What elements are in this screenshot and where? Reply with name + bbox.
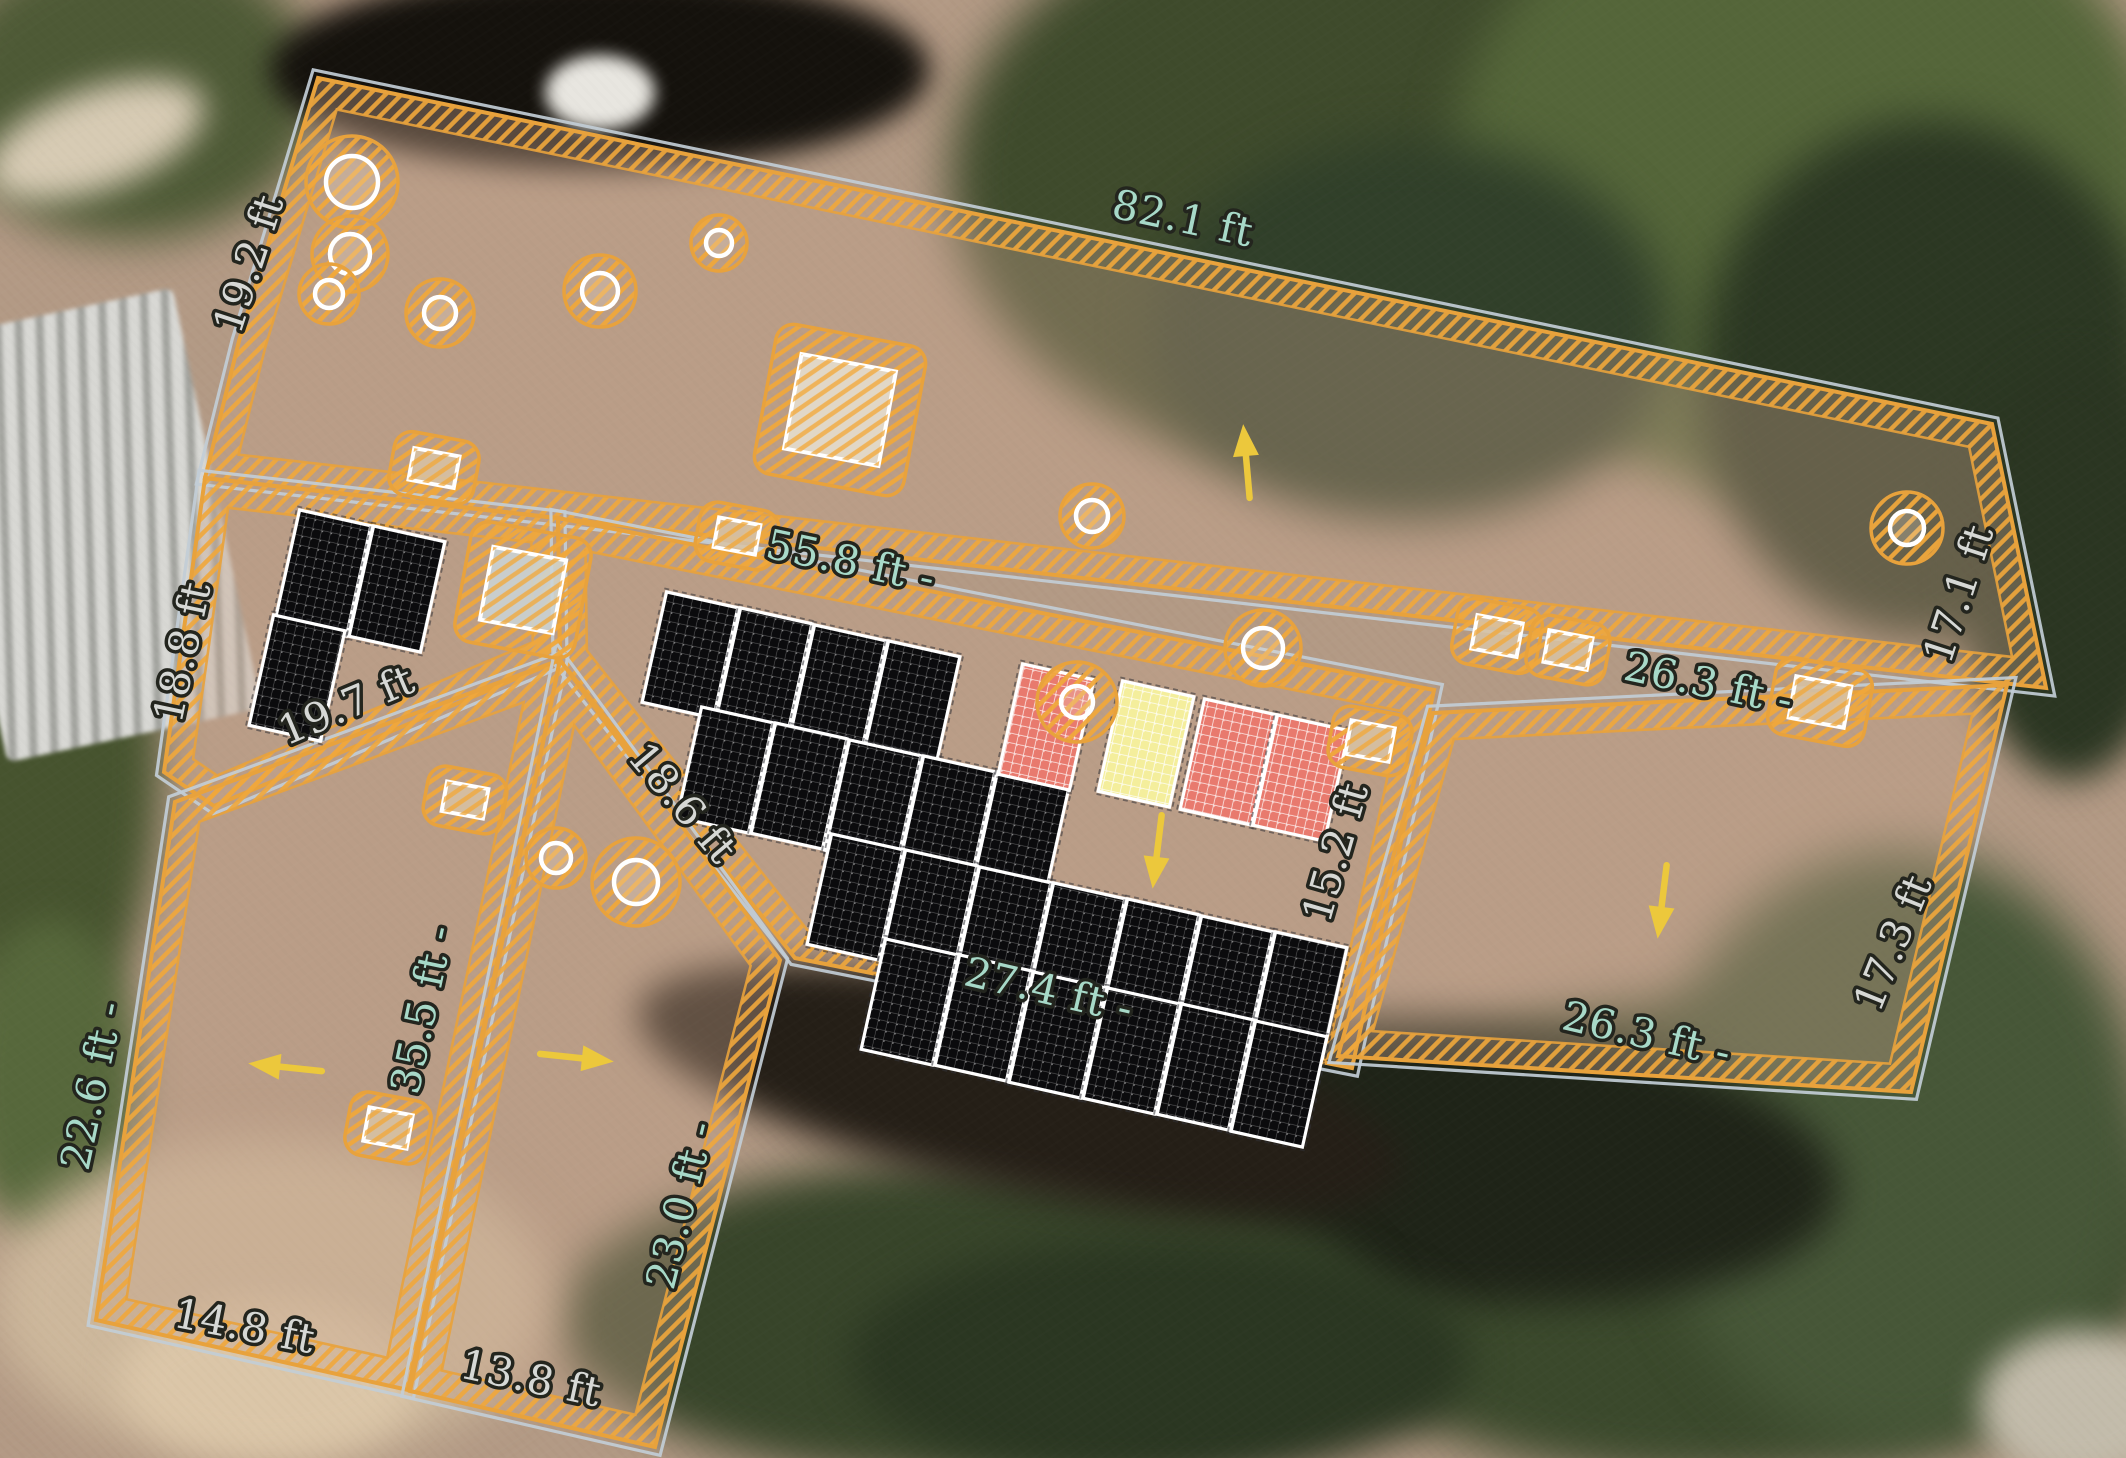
solar-design-canvas[interactable]: 82.1 ft19.2 ft55.8 ft -18.8 ft19.7 ft18.… [0, 0, 2126, 1458]
vent-obstruction[interactable] [406, 279, 474, 347]
vent-circle-icon [1890, 511, 1924, 545]
vent-obstruction[interactable] [1037, 662, 1117, 742]
skylight-obstruction[interactable] [1523, 612, 1613, 688]
vent-circle-icon [1076, 500, 1108, 532]
vent-obstruction[interactable] [592, 838, 680, 926]
skylight-obstruction[interactable] [1325, 703, 1415, 779]
vent-circle-icon [1243, 628, 1283, 668]
vent-obstruction[interactable] [1060, 484, 1124, 548]
vent-obstruction[interactable] [306, 136, 398, 228]
vent-circle-icon [706, 230, 732, 256]
vent-circle-icon [1061, 686, 1093, 718]
design-overlay: 82.1 ft19.2 ft55.8 ft -18.8 ft19.7 ft18.… [0, 0, 2126, 1458]
vent-obstruction[interactable] [1225, 610, 1301, 686]
vent-circle-icon [541, 843, 571, 873]
vent-obstruction[interactable] [299, 264, 359, 324]
vent-obstruction[interactable] [526, 828, 586, 888]
vent-obstruction[interactable] [564, 255, 636, 327]
skylight-obstruction[interactable] [452, 519, 594, 661]
vent-circle-icon [614, 860, 658, 904]
skylight-obstruction[interactable] [386, 429, 482, 508]
vent-circle-icon [582, 273, 618, 309]
vent-circle-icon [315, 280, 343, 308]
skylight-hatch [480, 547, 566, 633]
skylight-obstruction[interactable] [751, 321, 928, 498]
skylight-obstruction[interactable] [342, 1089, 434, 1167]
skylight-hatch [784, 354, 896, 466]
vent-circle-icon [326, 156, 378, 208]
vent-obstruction[interactable] [1871, 492, 1943, 564]
vent-obstruction[interactable] [691, 215, 747, 271]
vent-circle-icon [424, 297, 456, 329]
skylight-obstruction[interactable] [420, 763, 510, 837]
